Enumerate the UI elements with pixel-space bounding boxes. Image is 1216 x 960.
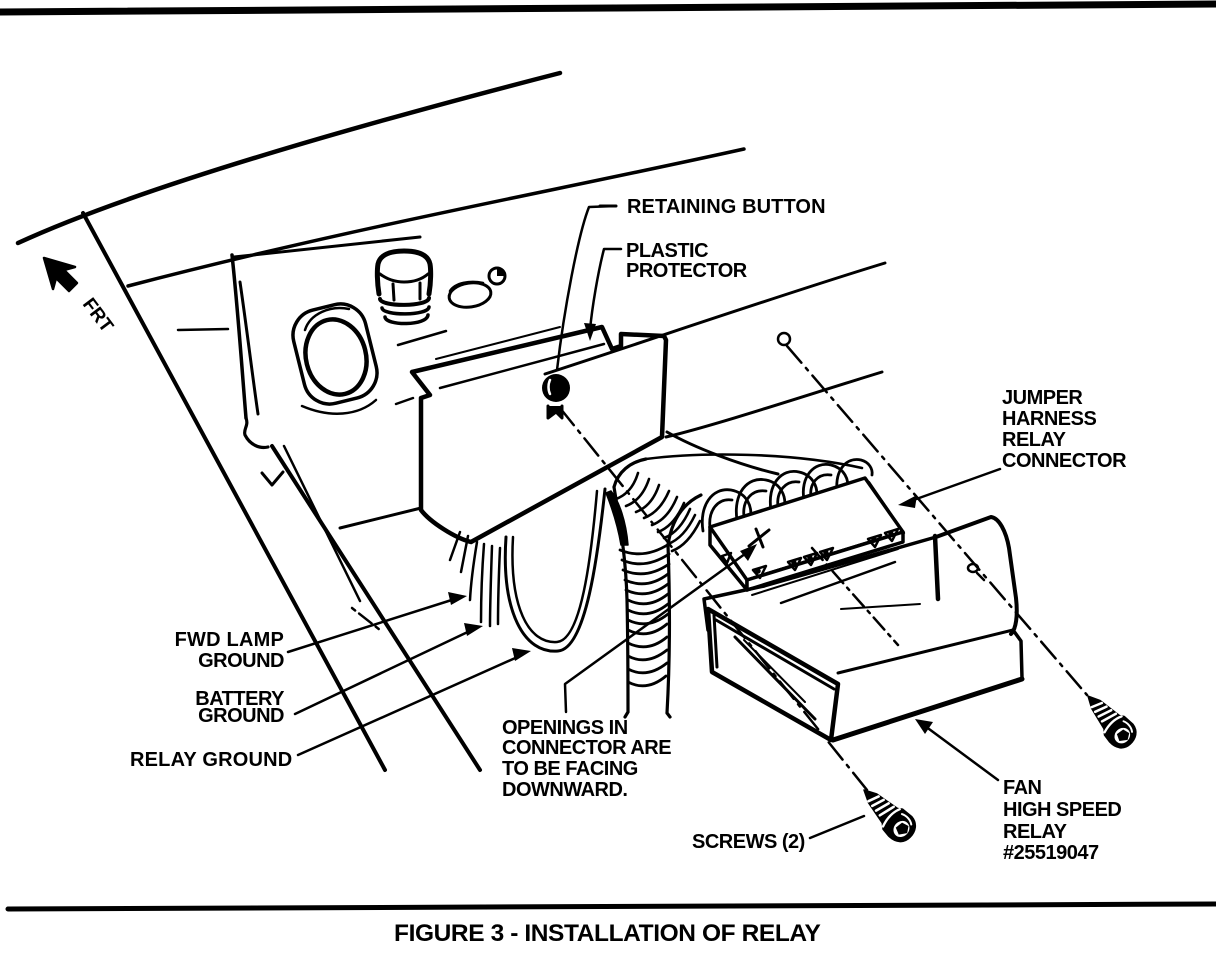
svg-text:OPENINGS IN: OPENINGS IN [502,717,628,739]
svg-text:PLASTIC: PLASTIC [626,240,708,262]
svg-text:SCREWS (2): SCREWS (2) [692,831,805,853]
svg-text:RELAY GROUND: RELAY GROUND [130,749,292,771]
svg-text:FRT: FRT [78,294,117,336]
svg-text:GROUND: GROUND [198,650,284,672]
svg-text:RETAINING BUTTON: RETAINING BUTTON [627,196,826,218]
svg-text:RELAY: RELAY [1003,821,1068,843]
svg-text:HIGH SPEED: HIGH SPEED [1003,799,1121,821]
svg-text:CONNECTOR: CONNECTOR [1002,450,1127,472]
svg-text:TO BE FACING: TO BE FACING [502,758,638,780]
svg-text:JUMPER: JUMPER [1002,387,1083,409]
svg-text:FWD LAMP: FWD LAMP [175,629,284,651]
svg-text:FIGURE 3 - INSTALLATION OF REL: FIGURE 3 - INSTALLATION OF RELAY [394,920,820,947]
svg-text:DOWNWARD.: DOWNWARD. [502,779,627,801]
svg-text:HARNESS: HARNESS [1002,408,1096,430]
svg-text:#25519047: #25519047 [1003,842,1099,864]
svg-text:GROUND: GROUND [198,705,284,727]
svg-text:RELAY: RELAY [1002,429,1067,451]
svg-text:PROTECTOR: PROTECTOR [626,260,748,282]
svg-text:CONNECTOR ARE: CONNECTOR ARE [502,737,671,759]
svg-text:FAN: FAN [1003,777,1042,799]
